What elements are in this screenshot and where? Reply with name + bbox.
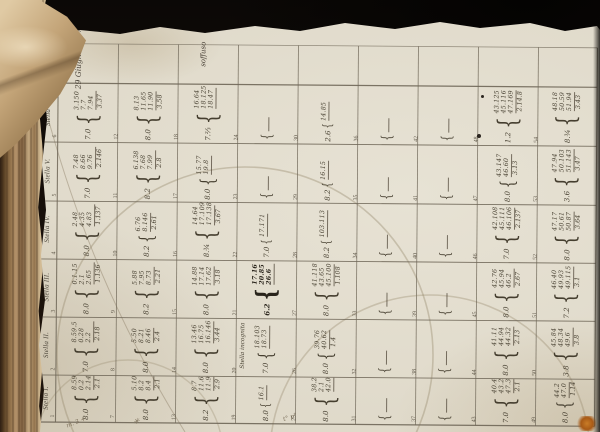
cell-number: 29 (293, 194, 299, 200)
observation-values: 40.443.247.32.1 (490, 379, 521, 393)
observation-values: 8.590.22.142.1 (70, 376, 101, 390)
cell-number: 30 (294, 135, 300, 141)
observation-values: 43.12545.11647.1692.14.8 (493, 90, 524, 114)
brace-icon: { (494, 349, 519, 361)
entry-time: 8.¾ (563, 130, 571, 144)
observation-line (438, 293, 445, 307)
brace-icon: { (381, 134, 394, 140)
handwritten-entry: 8.0{47.1750.6150.873.64 (543, 208, 590, 260)
handwritten-entry: 3.8{45.8448.3449.63.8 (542, 324, 589, 376)
row-label: Stella IV. (43, 207, 51, 251)
brace-icon: { (554, 234, 579, 246)
handwritten-scrawl: { (423, 207, 471, 259)
row-label: Stella I. (42, 375, 50, 419)
table-cell: 481.2{43.12545.11647.1692.14.8 (478, 86, 538, 145)
observation-values: 5.108.28.42.1 (130, 376, 161, 390)
cell-number: 53 (533, 196, 539, 202)
observation-line: 18.47 (207, 87, 214, 108)
observation-sum (448, 118, 457, 132)
entry-time: 8.0 (322, 305, 330, 316)
observation-line: 46.2 (505, 269, 512, 288)
brace-icon: { (261, 133, 274, 139)
observation-values: 15.7719.8 (196, 155, 220, 174)
handwritten-entry: 8.0{43.14746.603.13 (483, 148, 531, 201)
brace-icon: { (194, 289, 219, 301)
observation-line (378, 351, 385, 365)
row-label: Stella V. (43, 148, 51, 192)
brace-icon: { (195, 229, 220, 241)
brace-icon: { (198, 177, 216, 186)
observation-sum (445, 398, 454, 412)
observation-line: 26.6 (265, 264, 272, 285)
observation-values: 47.9450.10351.1433.47 (552, 149, 583, 172)
handwritten-entry: 8.0{0.1.152.12.651.136 (62, 262, 110, 314)
observation-line: 16.15 (319, 160, 326, 179)
observation-sum (446, 351, 455, 365)
brace-icon: { (133, 393, 158, 405)
handwritten-scrawl: { (422, 323, 470, 375)
cell-number: 22 (233, 252, 239, 258)
observation-values: 8.1311.6511.903.58 (133, 91, 164, 110)
brace-icon: { (135, 113, 160, 125)
cell-number: 45 (472, 311, 478, 317)
observation-sum (273, 264, 282, 285)
observation-line (439, 177, 446, 191)
observation-sum: 2.1 (512, 379, 521, 393)
handwritten-entry: 7.0{40.443.247.32.1 (481, 381, 529, 422)
brace-icon: { (261, 239, 272, 244)
brace-icon: { (134, 288, 159, 300)
observation-sum (267, 214, 276, 237)
handwritten-scrawl: { (423, 148, 471, 201)
observation-line: 8.146 (142, 212, 149, 231)
handwritten-scrawl: { (362, 322, 410, 374)
observation-values (259, 176, 276, 190)
entry-time: 8.2 (323, 247, 331, 258)
observation-table: OSSERVAZIONI 29 Giugno 1847 soffuso Stel… (0, 0, 600, 432)
handwritten-scrawl: { (421, 381, 469, 422)
cell-number: 47 (473, 195, 479, 201)
observation-values: 16.6418.12518.47 (193, 87, 224, 108)
handwritten-entry: 2.6{14.85 (304, 88, 352, 141)
observation-line: 47.17 (551, 211, 558, 230)
observation-line (437, 398, 444, 412)
observation-sum (327, 210, 336, 238)
brace-icon: { (380, 251, 393, 257)
observation-values (438, 351, 455, 365)
entry-time: 8.0 (142, 362, 150, 373)
brace-icon: { (495, 116, 520, 128)
table-cell: 302.6{14.85 (298, 85, 358, 144)
handwritten-scrawl: { (363, 147, 411, 200)
entry-time: 8.¾ (203, 244, 211, 258)
cell-number: 18 (174, 134, 180, 140)
observation-values: 17.171 (259, 214, 276, 237)
observation-line: 8.59 (70, 376, 77, 390)
entry-time: 7.0 (83, 187, 91, 198)
entry-time: 8.2 (143, 246, 151, 257)
observation-line: 8.73 (145, 267, 152, 285)
brace-icon: { (556, 401, 574, 410)
observation-line: 0.2 (77, 376, 84, 390)
cell-number: 42 (414, 136, 420, 142)
cell-number: 31 (351, 416, 357, 422)
brace-icon: { (134, 346, 159, 358)
observation-sum: 2.1 (92, 376, 101, 390)
observation-line: 43.2 (497, 379, 504, 393)
observation-line: 7.68 (139, 150, 146, 169)
handwritten-entry: 8.0{13.4616.7516.1463.44 (182, 321, 230, 373)
observation-line: 7.99 (146, 150, 153, 169)
observation-line: 2.1 (317, 377, 324, 391)
observation-values: 14.8817.1417.623.18 (191, 266, 222, 285)
observation-values: 5.887.958.732.21 (131, 267, 162, 285)
handwritten-entry: 8.0{14.8817.1417.623.18 (182, 263, 230, 315)
handwritten-scrawl: { (361, 380, 409, 421)
cell-number: 32 (352, 369, 358, 375)
brace-icon: { (498, 179, 516, 188)
entry-time: 8.0 (144, 129, 152, 140)
handwritten-entry: 8.2{6.768.1462.61 (123, 205, 171, 257)
observation-values: 5.508.218.462.4 (131, 328, 162, 343)
table-cell: 39{ (416, 262, 476, 320)
entry-time: 8.0 (502, 364, 510, 375)
observation-sum: 1.108 (333, 264, 342, 286)
brace-icon: { (494, 291, 519, 303)
observation-values: 42.10845.11146.1062.137 (492, 208, 523, 231)
entry-time: 8.0 (203, 188, 211, 199)
cell-number: 23 (233, 194, 239, 200)
table-cell: 503.8{45.8448.3449.63.8 (536, 321, 595, 379)
observation-sum (211, 155, 220, 174)
table-cell: 23{ (237, 144, 297, 203)
entry-time: 8.0 (202, 304, 210, 315)
cell-number: 50 (532, 370, 538, 376)
observation-sum: 2.9 (212, 377, 221, 391)
cell-number: 20 (232, 368, 238, 374)
handwritten-scrawl: { (244, 88, 292, 141)
entry-time: 7.0 (263, 247, 271, 258)
table-cell: 258.0{38.22.142.0 (295, 377, 355, 424)
brace-icon: { (441, 135, 454, 141)
handwritten-entry: 7.0{7.488.669.762.146 (63, 145, 111, 198)
observation-line: 17.138 (206, 205, 213, 225)
entry-time: 8.2 (323, 189, 331, 200)
observation-values: 14.85 (320, 101, 337, 120)
entry-time: 8.0 (561, 412, 569, 423)
observation-line: 17.62 (205, 267, 212, 286)
observation-values (380, 118, 397, 132)
table-cell: 268.0{39.7640.621.4 (296, 319, 356, 377)
observation-line: 47.0 (560, 382, 567, 398)
observation-values: 44.247.01.14 (553, 382, 577, 398)
entry-time: 7.0 (262, 363, 270, 374)
entry-time: 1.2 (504, 131, 512, 142)
brace-icon: { (75, 230, 100, 242)
observation-sum (215, 87, 224, 108)
observation-values: 47.1750.6150.873.64 (551, 211, 582, 230)
handwritten-entry: 7.0{8.59.50.282.22.18 (62, 320, 110, 372)
observation-sum: 1.4 (329, 330, 338, 349)
cell-number: 21 (232, 310, 238, 316)
observation-line: 47.169 (507, 90, 514, 113)
table-cell: 278.0{41.11843.6545.1001.108 (296, 261, 356, 319)
observation-sum (386, 293, 395, 307)
observation-line: 45.84 (550, 327, 557, 346)
observation-values (378, 293, 395, 307)
table-cell: 36{ (358, 85, 418, 144)
observation-line: 7.7 (80, 91, 87, 110)
cell-number: 36 (354, 136, 360, 142)
table-cell: 148.0{13.4616.7516.1463.44 (176, 318, 236, 376)
table-cell: 187.⅔{16.6418.12518.47 (178, 84, 238, 143)
brace-icon: { (439, 415, 452, 421)
observation-line (259, 176, 266, 190)
handwritten-entry: 8.0{41.1144.9444.322.13 (482, 323, 530, 375)
observation-values: 38.22.142.0 (310, 377, 341, 391)
row-label: Stella II. (42, 323, 50, 367)
handwritten-entry: 7.⅔{16.6418.12518.47 (184, 87, 232, 140)
observation-line: 16.64 (193, 87, 200, 108)
table-cell: 31{ (355, 377, 415, 424)
observation-line (379, 235, 386, 249)
observation-sum: 2.67 (513, 269, 522, 288)
observation-line: 17.171 (259, 214, 266, 237)
observation-line: 8.66 (79, 146, 86, 168)
observation-line: 8.2 (137, 376, 144, 390)
observation-line: 11.90 (147, 91, 154, 110)
table-cell: 57.0{7.488.669.762.146 (57, 142, 117, 201)
observation-line: 103.113 (319, 210, 326, 238)
observation-sum (327, 160, 336, 179)
observation-line: 9.76 (86, 146, 93, 168)
observation-line: 49.6 (564, 327, 571, 346)
table-cell: 88.0{5.508.218.462.4 (116, 318, 176, 376)
brace-icon: { (314, 290, 339, 302)
observation-line: 45.100 (325, 264, 332, 286)
table-cell: 98.2{5.887.958.732.21 (116, 260, 176, 318)
entry-time: 8.0 (322, 363, 330, 374)
table-cell: 32{ (356, 319, 416, 377)
observation-values: 8.59.50.282.22.18 (71, 321, 102, 342)
observation-sum: 2.1 (152, 376, 161, 390)
observation-line (260, 117, 267, 131)
handwritten-entry: 3.6{47.9450.10351.1433.47 (543, 149, 590, 202)
observation-sum (387, 177, 396, 191)
brace-icon: { (381, 193, 394, 199)
entry-time: 3.8 (561, 365, 569, 376)
observation-values: 45.8448.3449.63.8 (550, 327, 581, 346)
observation-values (378, 351, 395, 365)
observation-line: 8.4 (144, 376, 151, 390)
observation-line: 8.13 (133, 91, 140, 110)
observation-line: 46.40 (551, 266, 558, 288)
entry-time: 8.0 (502, 306, 510, 317)
table-cell: 128.0{8.1311.6511.903.58 (118, 84, 178, 143)
brace-icon: { (493, 396, 518, 408)
observation-values: 41.1144.9444.322.13 (491, 327, 522, 346)
cell-number: 14 (172, 367, 178, 373)
brace-icon: { (440, 252, 453, 258)
brace-icon: { (313, 395, 338, 407)
table-cell: 40{ (417, 204, 477, 262)
observation-line: 16.146 (205, 321, 212, 343)
table-cell: 168.¾{14.6417.10917.1383.67 (177, 202, 237, 260)
observation-line (379, 177, 386, 191)
brace-icon: { (135, 172, 160, 184)
observation-sum (269, 325, 278, 348)
observation-values (377, 398, 394, 412)
brace-icon: { (440, 310, 453, 316)
brace-icon: { (379, 414, 392, 420)
handwritten-entry: 8.0{5.108.28.42.1 (122, 379, 170, 420)
observation-values: 2.484.354.831.137 (72, 204, 103, 227)
entry-time: 8.0 (321, 410, 329, 421)
observation-values (438, 293, 455, 307)
observation-sum: 3.67 (214, 205, 223, 225)
table-cell: 38{ (416, 320, 476, 378)
observation-line: 2.14 (84, 376, 91, 390)
cell-number: 12 (114, 134, 120, 140)
handwritten-entry: 8.¾{48.1850.5951.943.43 (544, 90, 591, 143)
cell-number: 26 (292, 368, 298, 374)
observation-values (439, 177, 456, 191)
observation-line: 18.125 (200, 87, 207, 108)
table-cell: 48.0{2.484.354.831.137 (57, 201, 117, 259)
handwritten-entry: 8.0{38.22.142.0 (301, 380, 349, 421)
handwritten-entry: 8.0{16.1 (242, 380, 290, 421)
handwritten-entry: 1.2{43.12545.11647.1692.14.8 (484, 89, 532, 142)
entry-time: 7.0 (503, 248, 511, 259)
table-cell: 288.2{103.113 (297, 203, 357, 261)
table-cell: 178.0{15.7719.8 (177, 143, 237, 202)
brace-icon: { (73, 393, 98, 405)
margin-annotation: soffuso (199, 26, 207, 82)
observation-line (439, 235, 446, 249)
observation-values: 103.113 (319, 210, 336, 238)
table-cell: 37{ (415, 378, 475, 425)
cell-number: 37 (411, 416, 417, 422)
observation-values (260, 117, 277, 131)
observation-sum: 2.14.8 (515, 90, 524, 113)
table-cell: 78.0{5.108.28.42.1 (115, 376, 175, 423)
handwritten-entry: 8.0{15.7719.8 (183, 146, 231, 199)
handwritten-entry: 7.0{42.10845.11146.1062.137 (483, 207, 531, 259)
table-cell: 216.2{17.1620.8526.6 (236, 261, 296, 319)
entry-time: 8.2 (202, 409, 210, 420)
table-cell: 548.¾{48.1850.5951.943.43 (538, 87, 597, 146)
observation-values: 6.1387.687.992.8 (132, 150, 163, 169)
observation-values: 39.7640.621.4 (314, 330, 338, 349)
observation-values: 6.768.1462.61 (135, 212, 159, 231)
cell-number: 33 (352, 311, 358, 317)
handwritten-entry: 8.2{103.113 (303, 206, 351, 258)
table-cell: 24{ (238, 85, 298, 144)
cell-number: 6 (52, 135, 58, 138)
table-cell: 67.0{3.1507.77.943.37 (58, 83, 118, 142)
cell-number: 27 (292, 310, 298, 316)
table-cell: 467.0{42.10845.11146.1062.137 (477, 204, 537, 262)
cell-annotation: Stella incognita (240, 322, 246, 370)
observation-line (378, 293, 385, 307)
table-cell: 158.0{14.8817.1417.623.18 (176, 260, 236, 318)
observation-sum: 3.44 (213, 321, 222, 343)
cell-number: 41 (413, 195, 419, 201)
brace-icon: { (261, 192, 274, 198)
brace-icon: { (322, 123, 333, 128)
entry-time: 7.0 (82, 361, 90, 372)
entry-time: 3.6 (563, 191, 571, 202)
table-cell: 437.0{40.443.247.32.1 (475, 378, 535, 425)
observation-values (379, 235, 396, 249)
observation-line: 43.125 (493, 90, 500, 113)
observation-line: 2.2 (85, 321, 92, 342)
observation-sum: 2.146 (94, 146, 103, 168)
cell-number: 54 (534, 137, 540, 143)
handwritten-scrawl: { (363, 206, 411, 258)
table-cell: 33{ (356, 261, 416, 319)
cell-number: 11 (113, 193, 119, 199)
observation-values: 43.14746.603.13 (496, 153, 520, 176)
observation-values: 14.6417.10917.1383.67 (192, 205, 223, 225)
observation-values: 8.711.611.92.9 (190, 376, 221, 390)
observation-values (440, 118, 457, 132)
observation-line: 42.0 (324, 378, 331, 392)
entry-time: 2.6 (324, 130, 332, 141)
table-cell: 478.0{43.14746.603.13 (477, 145, 537, 204)
observation-values: 0.1.152.12.651.136 (71, 262, 102, 285)
brace-icon: { (193, 394, 218, 406)
table-cell: 227.0{17.171 (237, 203, 297, 261)
cell-number: 40 (413, 253, 419, 259)
table-cell: 41{ (417, 145, 477, 204)
observation-values: 7.488.669.762.146 (72, 146, 103, 169)
observation-sum (385, 398, 394, 412)
observation-line: 40.62 (321, 330, 328, 349)
observation-line (380, 118, 387, 132)
brace-icon: { (555, 114, 580, 126)
scanned-page-scene: OSSERVAZIONI 29 Giugno 1847 soffuso Stel… (0, 0, 600, 432)
brace-icon: { (257, 351, 275, 360)
cell-number: 16 (173, 251, 179, 257)
table-cell: 42{ (418, 86, 478, 145)
observation-values: 41.11843.6545.1001.108 (311, 264, 342, 287)
observation-line: 14.85 (320, 101, 327, 120)
cell-number: 13 (171, 414, 177, 420)
observation-line: 38.2 (310, 377, 317, 391)
observation-sum: 1.136 (93, 262, 102, 284)
cell-number: 43 (471, 416, 477, 422)
paper-sheet: OSSERVAZIONI 29 Giugno 1847 soffuso Stel… (0, 0, 600, 432)
cell-number: 4 (51, 252, 57, 255)
observation-line: 8.7 (190, 376, 197, 390)
entry-time: 8.2 (142, 304, 150, 315)
cell-number: 3 (51, 310, 57, 313)
brace-icon: { (75, 172, 100, 184)
brace-icon: { (74, 288, 99, 300)
observation-line: 40.4 (490, 379, 497, 393)
observation-line: 46.60 (503, 153, 510, 176)
brace-icon: { (194, 347, 219, 359)
cell-number: 49 (531, 417, 537, 423)
observation-values: 42.7645.9446.22.67 (491, 269, 522, 288)
observation-line (377, 398, 384, 412)
handwritten-entry: 8.0{5.508.218.462.4 (122, 321, 170, 373)
row-label: Stella III. (42, 265, 50, 309)
brace-icon: { (495, 233, 520, 245)
observation-sum: 3.1 (573, 266, 582, 288)
observation-values (437, 398, 454, 412)
